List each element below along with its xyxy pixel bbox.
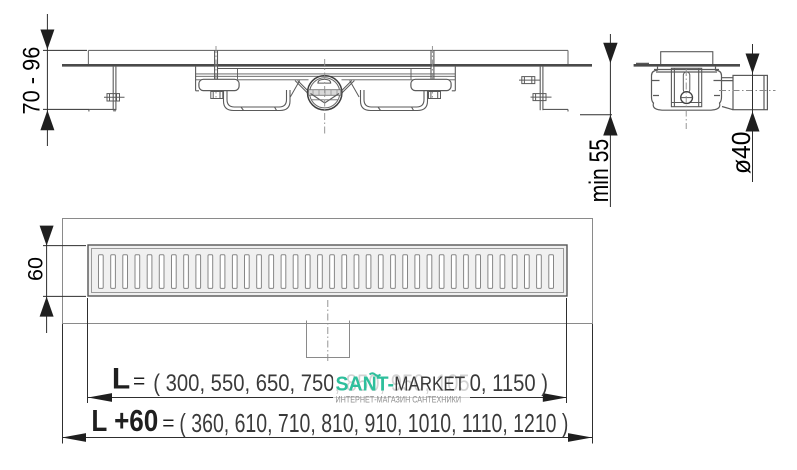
svg-text:( 360, 610, 710, 810, 910, 101: ( 360, 610, 710, 810, 910, 1010, 1110, 1… <box>179 408 568 438</box>
svg-text:ИНТЕРНЕТ-МАГАЗИН САНТЕХНИКИ: ИНТЕРНЕТ-МАГАЗИН САНТЕХНИКИ <box>336 394 462 405</box>
svg-text:=: = <box>162 412 174 435</box>
svg-text:60: 60 <box>24 257 48 281</box>
svg-text:ø40: ø40 <box>726 132 756 175</box>
svg-text:70 - 96: 70 - 96 <box>18 47 45 115</box>
svg-text:=: = <box>133 370 145 393</box>
svg-text:L: L <box>112 363 130 396</box>
svg-text:L +60: L +60 <box>91 403 158 438</box>
svg-text:SANT-: SANT- <box>336 374 395 396</box>
svg-text:MARKET: MARKET <box>394 374 465 396</box>
svg-text:min 55: min 55 <box>584 139 614 203</box>
